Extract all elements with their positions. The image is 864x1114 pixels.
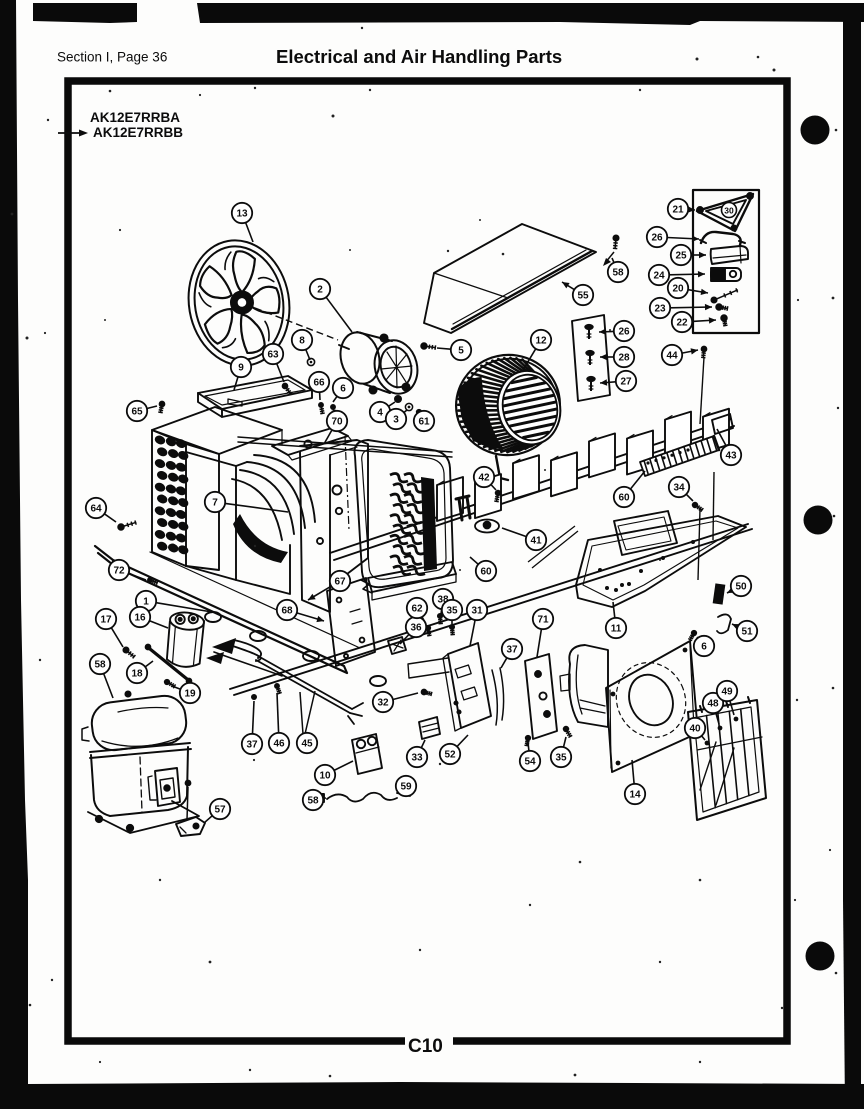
svg-text:C10: C10 (408, 1036, 443, 1057)
svg-text:61: 61 (418, 417, 430, 428)
svg-text:24: 24 (653, 271, 665, 282)
svg-text:71: 71 (537, 615, 549, 626)
svg-text:19: 19 (184, 689, 196, 700)
svg-text:1: 1 (143, 597, 149, 608)
svg-text:AK12E7RRBA: AK12E7RRBA (90, 110, 180, 125)
svg-text:58: 58 (612, 268, 624, 279)
svg-text:64: 64 (90, 504, 102, 515)
svg-text:14: 14 (629, 790, 641, 801)
svg-text:49: 49 (721, 687, 733, 698)
svg-text:55: 55 (577, 291, 589, 302)
svg-text:65: 65 (131, 407, 143, 418)
svg-text:58: 58 (307, 796, 319, 807)
svg-text:7: 7 (212, 498, 218, 509)
svg-text:11: 11 (611, 624, 622, 635)
svg-text:63: 63 (267, 350, 279, 361)
svg-text:41: 41 (530, 536, 542, 547)
svg-text:20: 20 (672, 284, 684, 295)
svg-text:16: 16 (134, 613, 146, 624)
svg-text:70: 70 (331, 417, 343, 428)
svg-text:21: 21 (672, 205, 684, 216)
svg-text:42: 42 (478, 473, 490, 484)
svg-text:32: 32 (377, 698, 389, 709)
svg-text:22: 22 (676, 318, 688, 329)
svg-text:46: 46 (273, 739, 285, 750)
svg-text:33: 33 (411, 753, 423, 764)
svg-text:28: 28 (618, 353, 630, 364)
svg-text:44: 44 (666, 351, 678, 362)
svg-text:26: 26 (651, 233, 663, 244)
svg-text:67: 67 (334, 577, 346, 588)
svg-text:58: 58 (94, 660, 106, 671)
svg-text:57: 57 (214, 805, 226, 816)
svg-text:10: 10 (319, 771, 331, 782)
svg-text:13: 13 (236, 209, 248, 220)
svg-text:66: 66 (313, 378, 325, 389)
svg-text:68: 68 (281, 606, 293, 617)
svg-text:8: 8 (299, 336, 305, 347)
svg-text:6: 6 (340, 384, 346, 395)
svg-text:59: 59 (400, 782, 412, 793)
svg-text:35: 35 (446, 606, 458, 617)
svg-text:18: 18 (131, 669, 143, 680)
svg-text:9: 9 (238, 363, 244, 374)
svg-text:40: 40 (689, 724, 701, 735)
svg-text:12: 12 (535, 336, 547, 347)
svg-text:48: 48 (707, 699, 719, 710)
svg-text:62: 62 (411, 604, 423, 615)
svg-text:51: 51 (741, 627, 753, 638)
svg-text:23: 23 (654, 304, 666, 315)
svg-text:37: 37 (246, 740, 258, 751)
svg-text:Electrical and Air Handling Pa: Electrical and Air Handling Parts (276, 46, 562, 67)
svg-text:35: 35 (555, 753, 567, 764)
svg-text:60: 60 (618, 493, 630, 504)
svg-text:37: 37 (506, 645, 518, 656)
svg-text:45: 45 (301, 739, 313, 750)
svg-text:3: 3 (393, 415, 399, 426)
svg-text:72: 72 (113, 566, 125, 577)
svg-text:54: 54 (524, 757, 536, 768)
svg-text:60: 60 (480, 567, 492, 578)
svg-text:5: 5 (458, 346, 464, 357)
svg-text:25: 25 (675, 251, 687, 262)
svg-text:26: 26 (618, 327, 630, 338)
svg-text:43: 43 (725, 451, 737, 462)
svg-text:34: 34 (673, 483, 685, 494)
svg-text:Section I, Page 36: Section I, Page 36 (57, 50, 167, 65)
svg-text:2: 2 (317, 285, 323, 296)
svg-text:6: 6 (701, 642, 707, 653)
svg-text:30: 30 (724, 205, 734, 215)
svg-text:17: 17 (100, 615, 112, 626)
svg-text:36: 36 (410, 623, 422, 634)
svg-text:27: 27 (620, 377, 632, 388)
svg-text:4: 4 (377, 408, 383, 419)
svg-text:AK12E7RRBB: AK12E7RRBB (93, 125, 183, 140)
svg-text:50: 50 (735, 582, 747, 593)
svg-text:52: 52 (444, 750, 456, 761)
svg-text:31: 31 (471, 606, 483, 617)
